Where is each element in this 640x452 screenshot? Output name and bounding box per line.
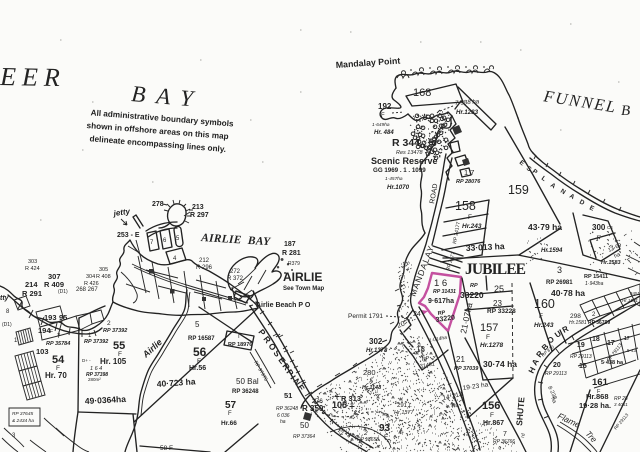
- svg-text:20: 20: [553, 362, 561, 369]
- svg-text:RP 29113: RP 29113: [570, 354, 592, 360]
- svg-text:Hr. 484: Hr. 484: [374, 130, 394, 136]
- svg-text:212: 212: [199, 258, 210, 264]
- svg-text:161: 161: [592, 377, 609, 388]
- svg-text:1 6: 1 6: [434, 278, 447, 289]
- svg-text:GG 1969 . 1 . 1099: GG 1969 . 1 . 1099: [373, 167, 426, 174]
- svg-text:268 267: 268 267: [76, 287, 98, 293]
- svg-text:EER: EER: [0, 62, 66, 92]
- svg-text:Airlie Beach P O: Airlie Beach P O: [256, 302, 311, 309]
- svg-text:214: 214: [25, 280, 38, 289]
- svg-text:3451: 3451: [630, 291, 640, 296]
- svg-text:JUBILEE: JUBILEE: [465, 261, 526, 278]
- svg-text:43·79 ha: 43·79 ha: [528, 222, 562, 232]
- svg-text:R 291: R 291: [22, 289, 42, 298]
- svg-text:Hr.1583: Hr.1583: [601, 260, 621, 266]
- svg-text:1·649ha: 1·649ha: [372, 122, 390, 128]
- svg-text:159: 159: [508, 183, 529, 197]
- svg-text:RP 29113: RP 29113: [545, 371, 567, 377]
- svg-text:Hr.1070: Hr.1070: [387, 184, 410, 191]
- svg-text:156: 156: [482, 400, 500, 412]
- svg-text:192: 192: [378, 102, 392, 111]
- svg-text:193: 193: [44, 313, 57, 322]
- svg-text:RP 36248: RP 36248: [276, 406, 298, 412]
- svg-text:3 4051: 3 4051: [614, 402, 628, 407]
- svg-text:R 350: R 350: [302, 404, 324, 413]
- svg-text:50: 50: [300, 421, 309, 430]
- svg-text:Scenic Reserve: Scenic Reserve: [371, 156, 438, 166]
- svg-text:50 Bal: 50 Bal: [236, 377, 259, 386]
- svg-text:280: 280: [363, 368, 376, 377]
- svg-text:18: 18: [592, 336, 600, 343]
- svg-text:ha: ha: [280, 419, 286, 425]
- svg-text:7: 7: [503, 431, 507, 438]
- svg-text:R 281: R 281: [282, 250, 301, 257]
- svg-text:RP 37392: RP 37392: [84, 339, 108, 345]
- svg-text:Hr.66: Hr.66: [221, 420, 237, 427]
- svg-text:RP 37392: RP 37392: [103, 328, 127, 334]
- svg-text:5: 5: [195, 320, 200, 329]
- svg-text:RP 31431: RP 31431: [433, 289, 456, 295]
- svg-text:R 409: R 409: [44, 280, 64, 289]
- svg-text:3: 3: [557, 265, 562, 275]
- svg-text:57: 57: [225, 400, 237, 411]
- svg-text:R 408: R 408: [96, 274, 111, 280]
- svg-text:30·74 ha: 30·74 ha: [483, 359, 517, 369]
- svg-text:RP 26981: RP 26981: [546, 280, 573, 286]
- svg-text:302: 302: [369, 337, 383, 346]
- svg-text:Hr.1283: Hr.1283: [456, 109, 479, 116]
- svg-text:272: 272: [230, 269, 241, 275]
- svg-text:(D1): (D1): [58, 289, 68, 295]
- svg-text:RP: RP: [470, 283, 478, 289]
- svg-text:F: F: [228, 411, 232, 417]
- svg-text:RP 36799: RP 36799: [588, 320, 610, 326]
- svg-text:Hr.1581: Hr.1581: [569, 320, 587, 326]
- svg-text:19: 19: [577, 342, 585, 349]
- svg-text:15: 15: [579, 363, 587, 370]
- svg-text:Hr.56: Hr.56: [189, 365, 206, 372]
- svg-text:9·617ha: 9·617ha: [428, 298, 454, 305]
- svg-text:17: 17: [624, 336, 630, 342]
- svg-text:Hr.1591: Hr.1591: [622, 298, 638, 303]
- svg-text:RP 35784: RP 35784: [46, 341, 70, 347]
- svg-text:Permit 1791: Permit 1791: [348, 313, 383, 320]
- svg-text:51: 51: [284, 391, 292, 400]
- svg-text:5-43: 5-43: [627, 348, 637, 353]
- svg-text:R 344: R 344: [392, 137, 420, 149]
- svg-text:RP 37039: RP 37039: [454, 366, 479, 372]
- svg-text:1·943ha: 1·943ha: [585, 281, 604, 287]
- svg-text:B: B: [621, 103, 630, 119]
- svg-text:253 - E: 253 - E: [117, 232, 140, 239]
- svg-text:21: 21: [456, 355, 465, 364]
- svg-text:F: F: [595, 234, 601, 243]
- svg-text:R 424: R 424: [25, 266, 40, 272]
- svg-text:See Town Map: See Town Map: [283, 286, 325, 292]
- svg-text:1 7: 1 7: [464, 168, 474, 177]
- svg-text:2: 2: [107, 320, 111, 327]
- svg-text:F: F: [468, 214, 472, 221]
- svg-text:Hr.1594: Hr.1594: [541, 248, 563, 254]
- svg-text:2: 2: [363, 430, 368, 437]
- svg-text:F: F: [197, 358, 201, 365]
- svg-text:F: F: [490, 412, 494, 419]
- svg-text:tty: tty: [0, 295, 10, 302]
- svg-text:103: 103: [36, 347, 49, 356]
- svg-text:RP 18976: RP 18976: [228, 342, 252, 348]
- svg-text:(D1): (D1): [2, 322, 12, 328]
- svg-text:95: 95: [59, 313, 67, 322]
- svg-text:40·78 ha: 40·78 ha: [551, 288, 585, 298]
- svg-text:RP 36248: RP 36248: [232, 389, 259, 395]
- svg-text:RP 33228: RP 33228: [487, 308, 516, 315]
- svg-text:157: 157: [480, 322, 498, 334]
- svg-text:RP 28076: RP 28076: [456, 179, 481, 185]
- svg-text:Hr.243: Hr.243: [462, 223, 482, 230]
- svg-text:C4: C4: [607, 225, 613, 230]
- svg-text:303: 303: [28, 259, 37, 265]
- svg-text:RP 16587: RP 16587: [188, 336, 215, 342]
- svg-text:RP 37645: RP 37645: [12, 411, 33, 417]
- svg-text:2: 2: [339, 430, 344, 437]
- svg-text:298: 298: [570, 313, 581, 320]
- svg-text:33·013 ha: 33·013 ha: [466, 241, 505, 253]
- svg-text:Hr. 105: Hr. 105: [100, 357, 127, 366]
- svg-text:1·457ha: 1·457ha: [385, 176, 403, 182]
- svg-text:3: 3: [239, 295, 242, 301]
- svg-text:R 296: R 296: [196, 265, 213, 271]
- svg-text:304: 304: [86, 274, 95, 280]
- svg-text:D+ -: D+ -: [82, 358, 91, 363]
- svg-text:300: 300: [592, 223, 606, 232]
- svg-text:278: 278: [152, 201, 164, 208]
- svg-text:F: F: [381, 113, 385, 119]
- svg-text:Hr.1378: Hr.1378: [366, 348, 388, 354]
- svg-text:17: 17: [607, 340, 615, 347]
- svg-text:R 372: R 372: [227, 276, 244, 282]
- svg-text:56: 56: [193, 345, 207, 359]
- svg-text:RP 15411: RP 15411: [584, 274, 608, 280]
- svg-text:Hr. 70: Hr. 70: [45, 371, 67, 380]
- svg-text:158: 158: [455, 199, 476, 213]
- svg-text:AIRLIE: AIRLIE: [283, 270, 322, 284]
- svg-text:168: 168: [413, 87, 431, 99]
- svg-text:Hr.1278: Hr.1278: [480, 342, 504, 349]
- svg-text:5·438 ha: 5·438 ha: [601, 360, 624, 366]
- svg-text:280m²: 280m²: [88, 377, 101, 382]
- svg-text:RP 37364: RP 37364: [293, 434, 315, 440]
- svg-text:187: 187: [284, 241, 296, 248]
- svg-text:305: 305: [99, 267, 108, 273]
- svg-text:213: 213: [192, 204, 204, 211]
- svg-text:R 297: R 297: [190, 212, 209, 219]
- svg-text:F: F: [50, 329, 53, 335]
- svg-text:& 2434 ha: & 2434 ha: [12, 418, 34, 424]
- svg-text:F: F: [486, 334, 490, 341]
- svg-text:R379: R379: [288, 261, 300, 267]
